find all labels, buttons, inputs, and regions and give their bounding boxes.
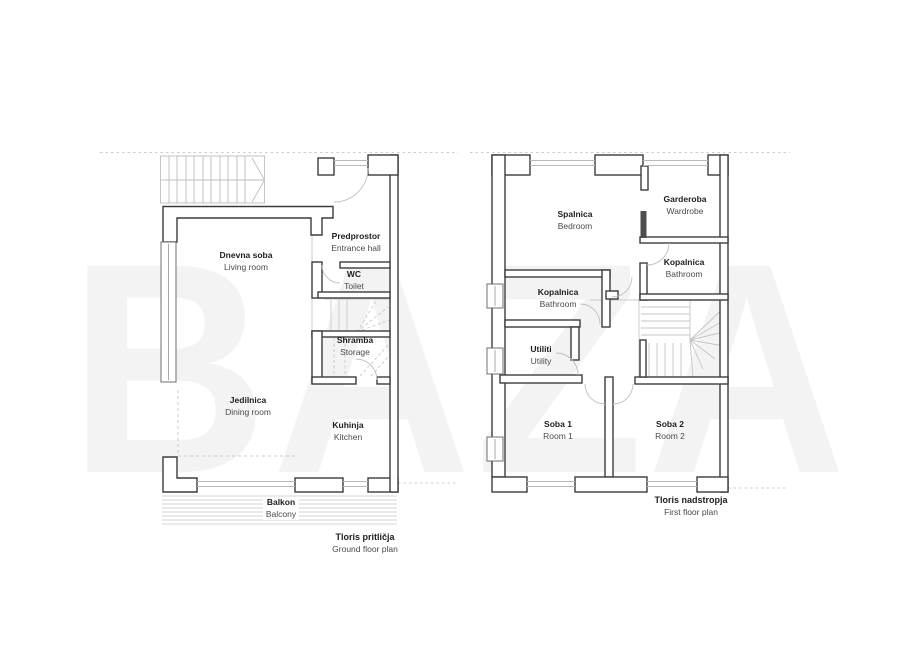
room-label-entrance-name: Predprostor	[331, 231, 381, 243]
first-floor-plan-title-en: First floor plan	[654, 507, 727, 519]
room-label-bathroom-main: Kopalnica Bathroom	[538, 287, 579, 310]
ground-floor-plan-title-sl: Tloris pritličja	[332, 532, 398, 544]
room-label-room1-translation: Room 1	[543, 431, 573, 443]
room-label-room2-name: Soba 2	[655, 419, 685, 431]
room-label-balcony-name: Balkon	[263, 497, 299, 509]
room-label-dining: Jedilnica Dining room	[225, 395, 271, 418]
room-label-bedroom-translation: Bedroom	[558, 221, 593, 233]
room-label-bathroom-small-translation: Bathroom	[664, 269, 705, 281]
room1-door-arc-icon	[585, 384, 605, 404]
room-label-utility: Utiliti Utility	[530, 344, 551, 367]
room-label-wardrobe: Garderoba Wardrobe	[664, 194, 707, 217]
room-label-bathroom-main-translation: Bathroom	[538, 299, 579, 311]
room-label-balcony-translation: Balcony	[263, 509, 299, 521]
storage-door-arc-icon	[356, 359, 377, 380]
room-label-storage: Shramba Storage	[337, 335, 373, 358]
living-room-window-icon	[161, 242, 176, 382]
room2-door-arc-icon	[613, 384, 633, 404]
room-label-living-translation: Living room	[220, 262, 273, 274]
room-label-utility-translation: Utility	[530, 356, 551, 368]
room-label-dining-translation: Dining room	[225, 407, 271, 419]
room-label-living-name: Dnevna soba	[220, 250, 273, 262]
entrance-door-arc-icon	[334, 168, 368, 202]
room-label-room2: Soba 2 Room 2	[655, 419, 685, 442]
bathroom-door-leaf-icon	[606, 291, 618, 299]
room-label-dining-name: Jedilnica	[225, 395, 271, 407]
floor-plan-drawing	[0, 0, 919, 649]
ground-floor-plan-title: Tloris pritličja Ground floor plan	[332, 532, 398, 555]
bathroom-main-door-arc-icon	[580, 304, 600, 324]
ground-floor-plan-title-en: Ground floor plan	[332, 544, 398, 556]
first-floor-guides	[590, 300, 639, 377]
room-label-wc-name: WC	[344, 269, 364, 281]
room-label-kitchen-translation: Kitchen	[332, 432, 363, 444]
room-label-utility-name: Utiliti	[530, 344, 551, 356]
first-floor-plan-title: Tloris nadstropja First floor plan	[654, 495, 727, 518]
room-label-bathroom-small: Kopalnica Bathroom	[664, 257, 705, 280]
room-label-room1-name: Soba 1	[543, 419, 573, 431]
room-label-wc-translation: Toilet	[344, 281, 364, 293]
room-label-kitchen: Kuhinja Kitchen	[332, 420, 363, 443]
room-label-storage-name: Shramba	[337, 335, 373, 347]
room-label-bathroom-main-name: Kopalnica	[538, 287, 579, 299]
room-label-bedroom-name: Spalnica	[558, 209, 593, 221]
room-label-wardrobe-name: Garderoba	[664, 194, 707, 206]
room-label-kitchen-name: Kuhinja	[332, 420, 363, 432]
room-label-bathroom-small-name: Kopalnica	[664, 257, 705, 269]
room-label-balcony: Balkon Balcony	[263, 497, 299, 520]
room-label-room2-translation: Room 2	[655, 431, 685, 443]
room-label-storage-translation: Storage	[337, 347, 373, 359]
first-floor-plan-title-sl: Tloris nadstropja	[654, 495, 727, 507]
bedroom-sliding-door-icon	[641, 211, 647, 238]
room-label-wc: WC Toilet	[344, 269, 364, 292]
room-label-entrance-translation: Entrance hall	[331, 243, 381, 255]
room-label-room1: Soba 1 Room 1	[543, 419, 573, 442]
wc-door-arc-icon	[322, 265, 340, 283]
first-floor-stairs-icon	[641, 300, 728, 377]
exterior-stairs-icon	[161, 156, 265, 203]
floor-plan-canvas: BAZA	[0, 0, 919, 649]
room-label-entrance: Predprostor Entrance hall	[331, 231, 381, 254]
room-label-bedroom: Spalnica Bedroom	[558, 209, 593, 232]
room-label-wardrobe-translation: Wardrobe	[664, 206, 707, 218]
room-label-living: Dnevna soba Living room	[220, 250, 273, 273]
